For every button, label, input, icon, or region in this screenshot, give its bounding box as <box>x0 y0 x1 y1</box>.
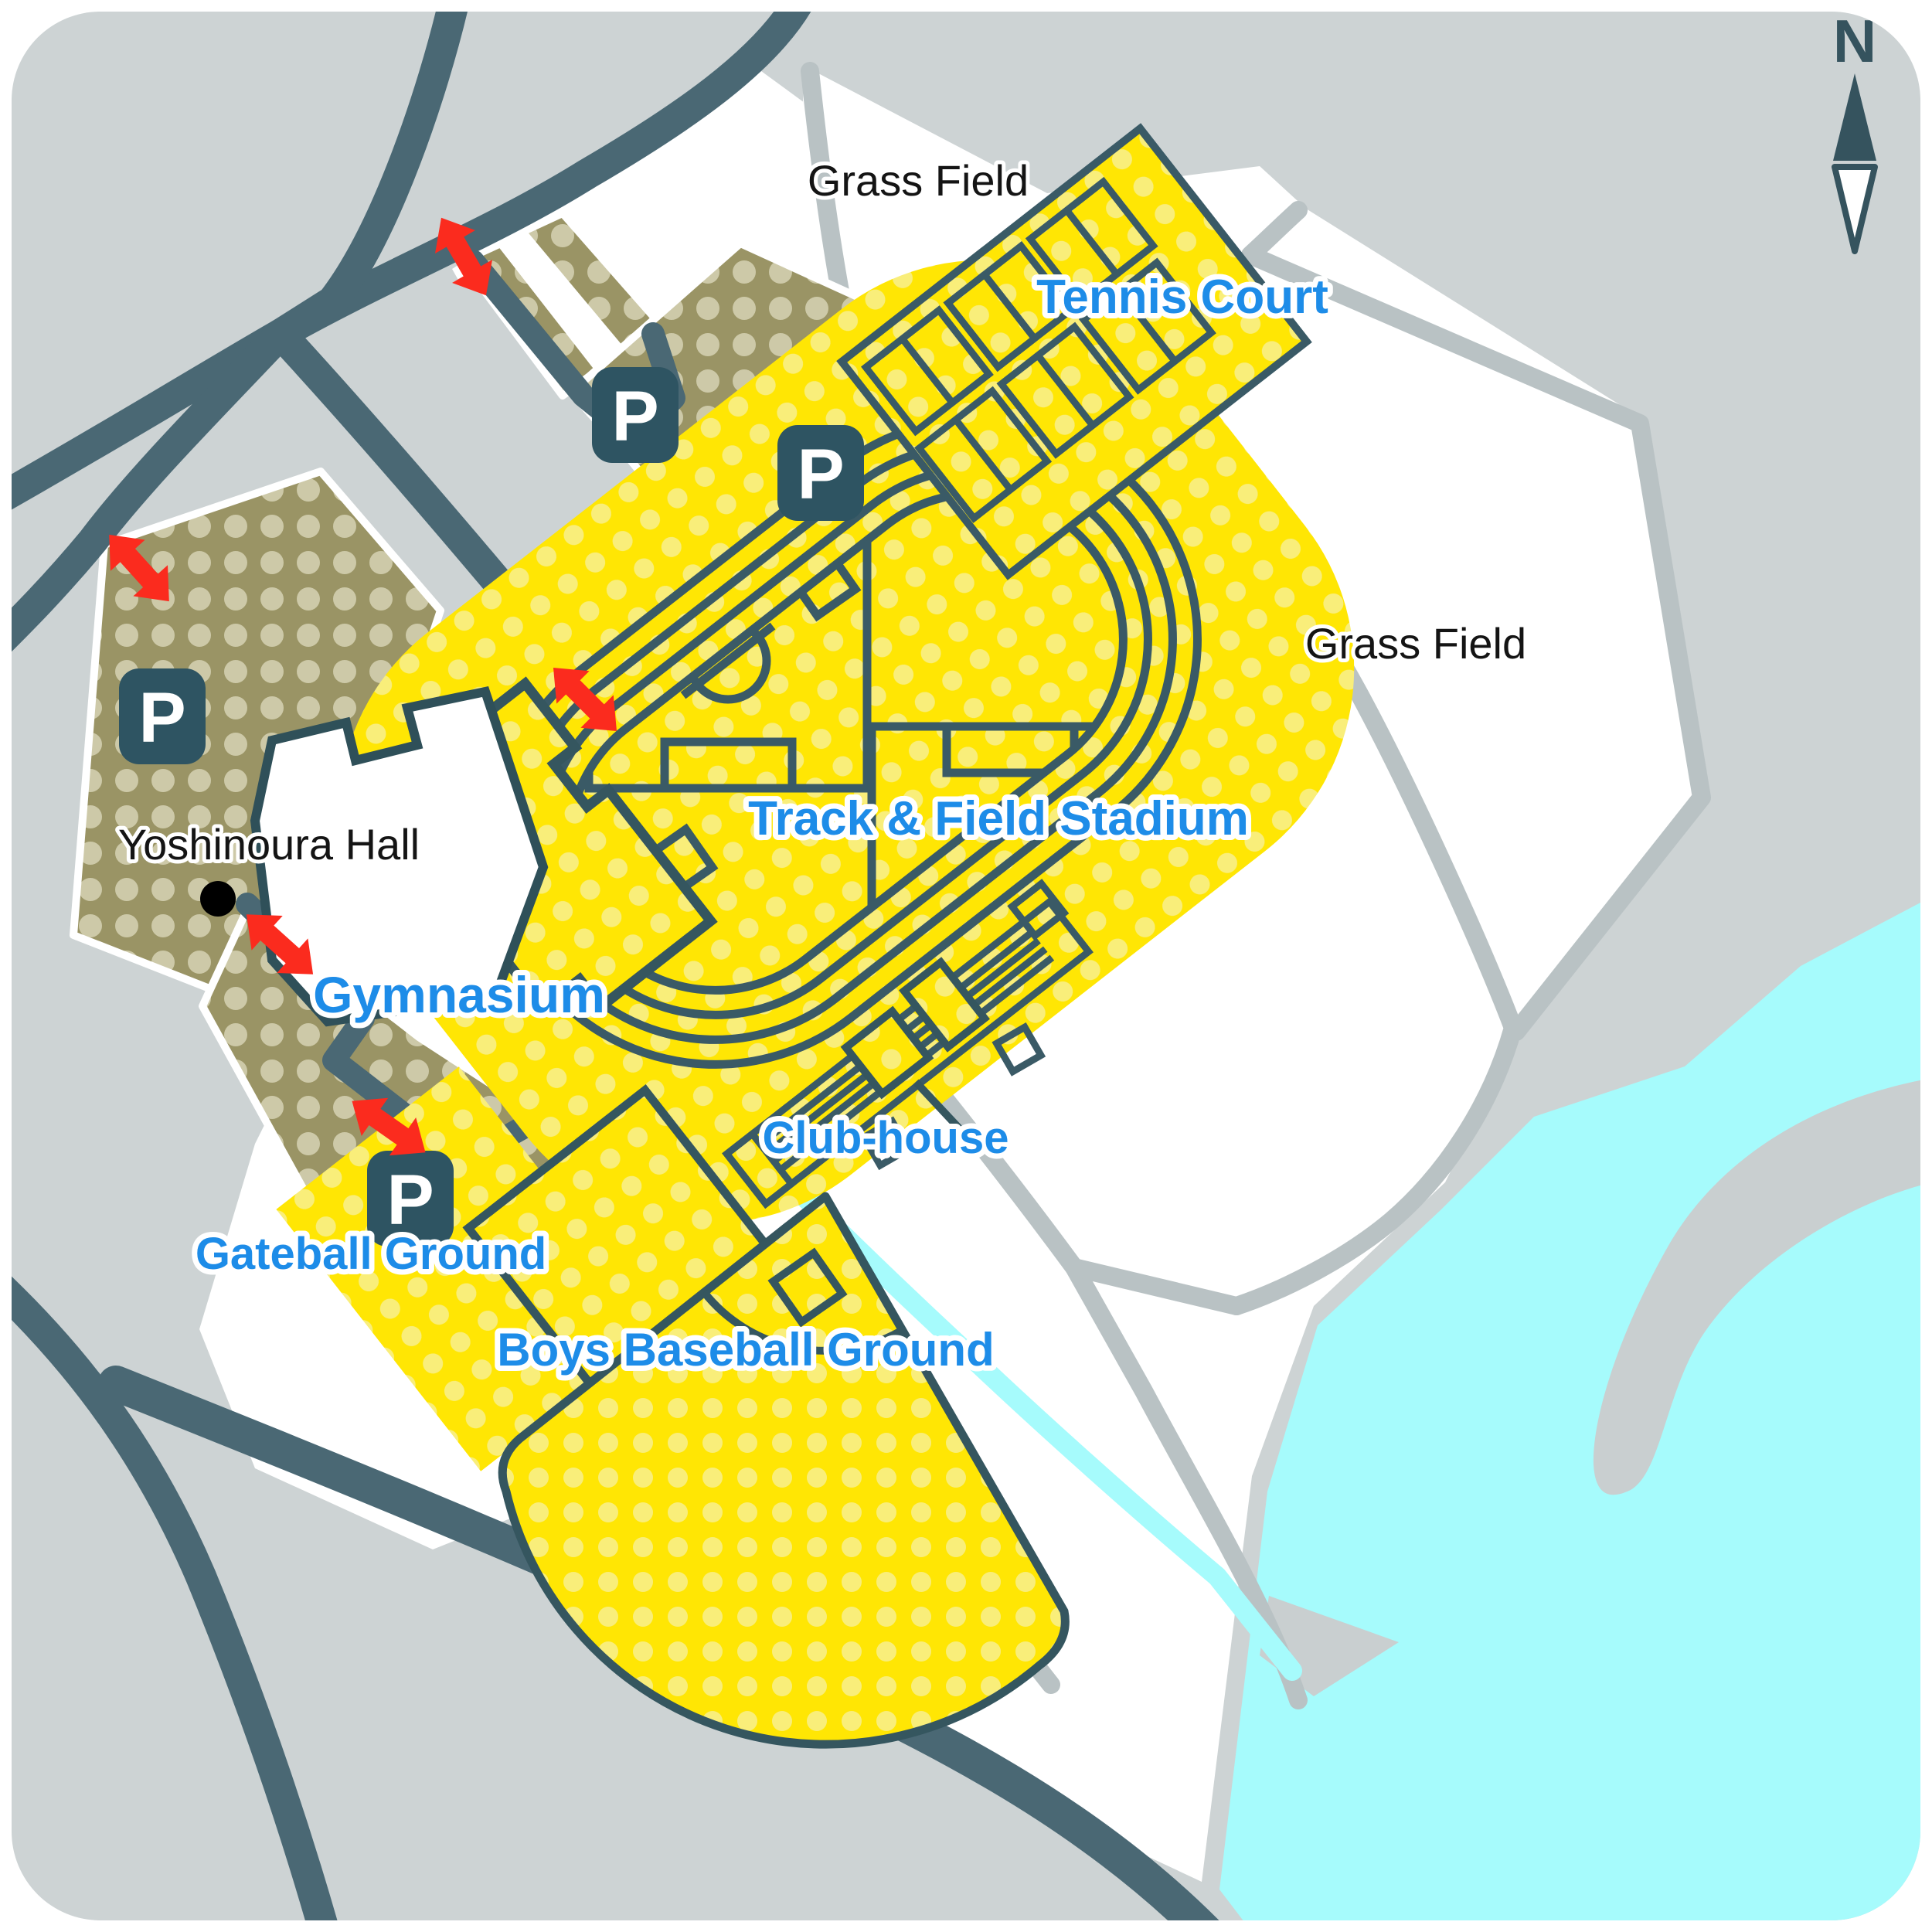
label-tennis-court: Tennis Court <box>1036 270 1328 324</box>
label-club-house: Club-house <box>763 1113 1009 1163</box>
parking-icon-north-a <box>592 367 679 463</box>
label-track-field-stadium: Track & Field Stadium <box>748 792 1249 845</box>
map-canvas: P <box>0 0 1932 1932</box>
label-gateball-ground: Gateball Ground <box>196 1229 546 1279</box>
label-yoshinoura-hall: Yoshinoura Hall <box>118 820 420 869</box>
label-gymnasium: Gymnasium <box>313 966 605 1023</box>
parking-icon-north-b <box>777 425 864 521</box>
parking-icon-west <box>119 668 206 764</box>
label-grass-field-east: Grass Field <box>1305 619 1526 668</box>
compass-n-label: N <box>1833 7 1876 75</box>
hall-location-dot <box>200 881 236 917</box>
label-boys-baseball-ground: Boys Baseball Ground <box>497 1324 994 1376</box>
label-grass-field-north: Grass Field <box>808 156 1029 205</box>
campus-map: P <box>0 0 1932 1932</box>
